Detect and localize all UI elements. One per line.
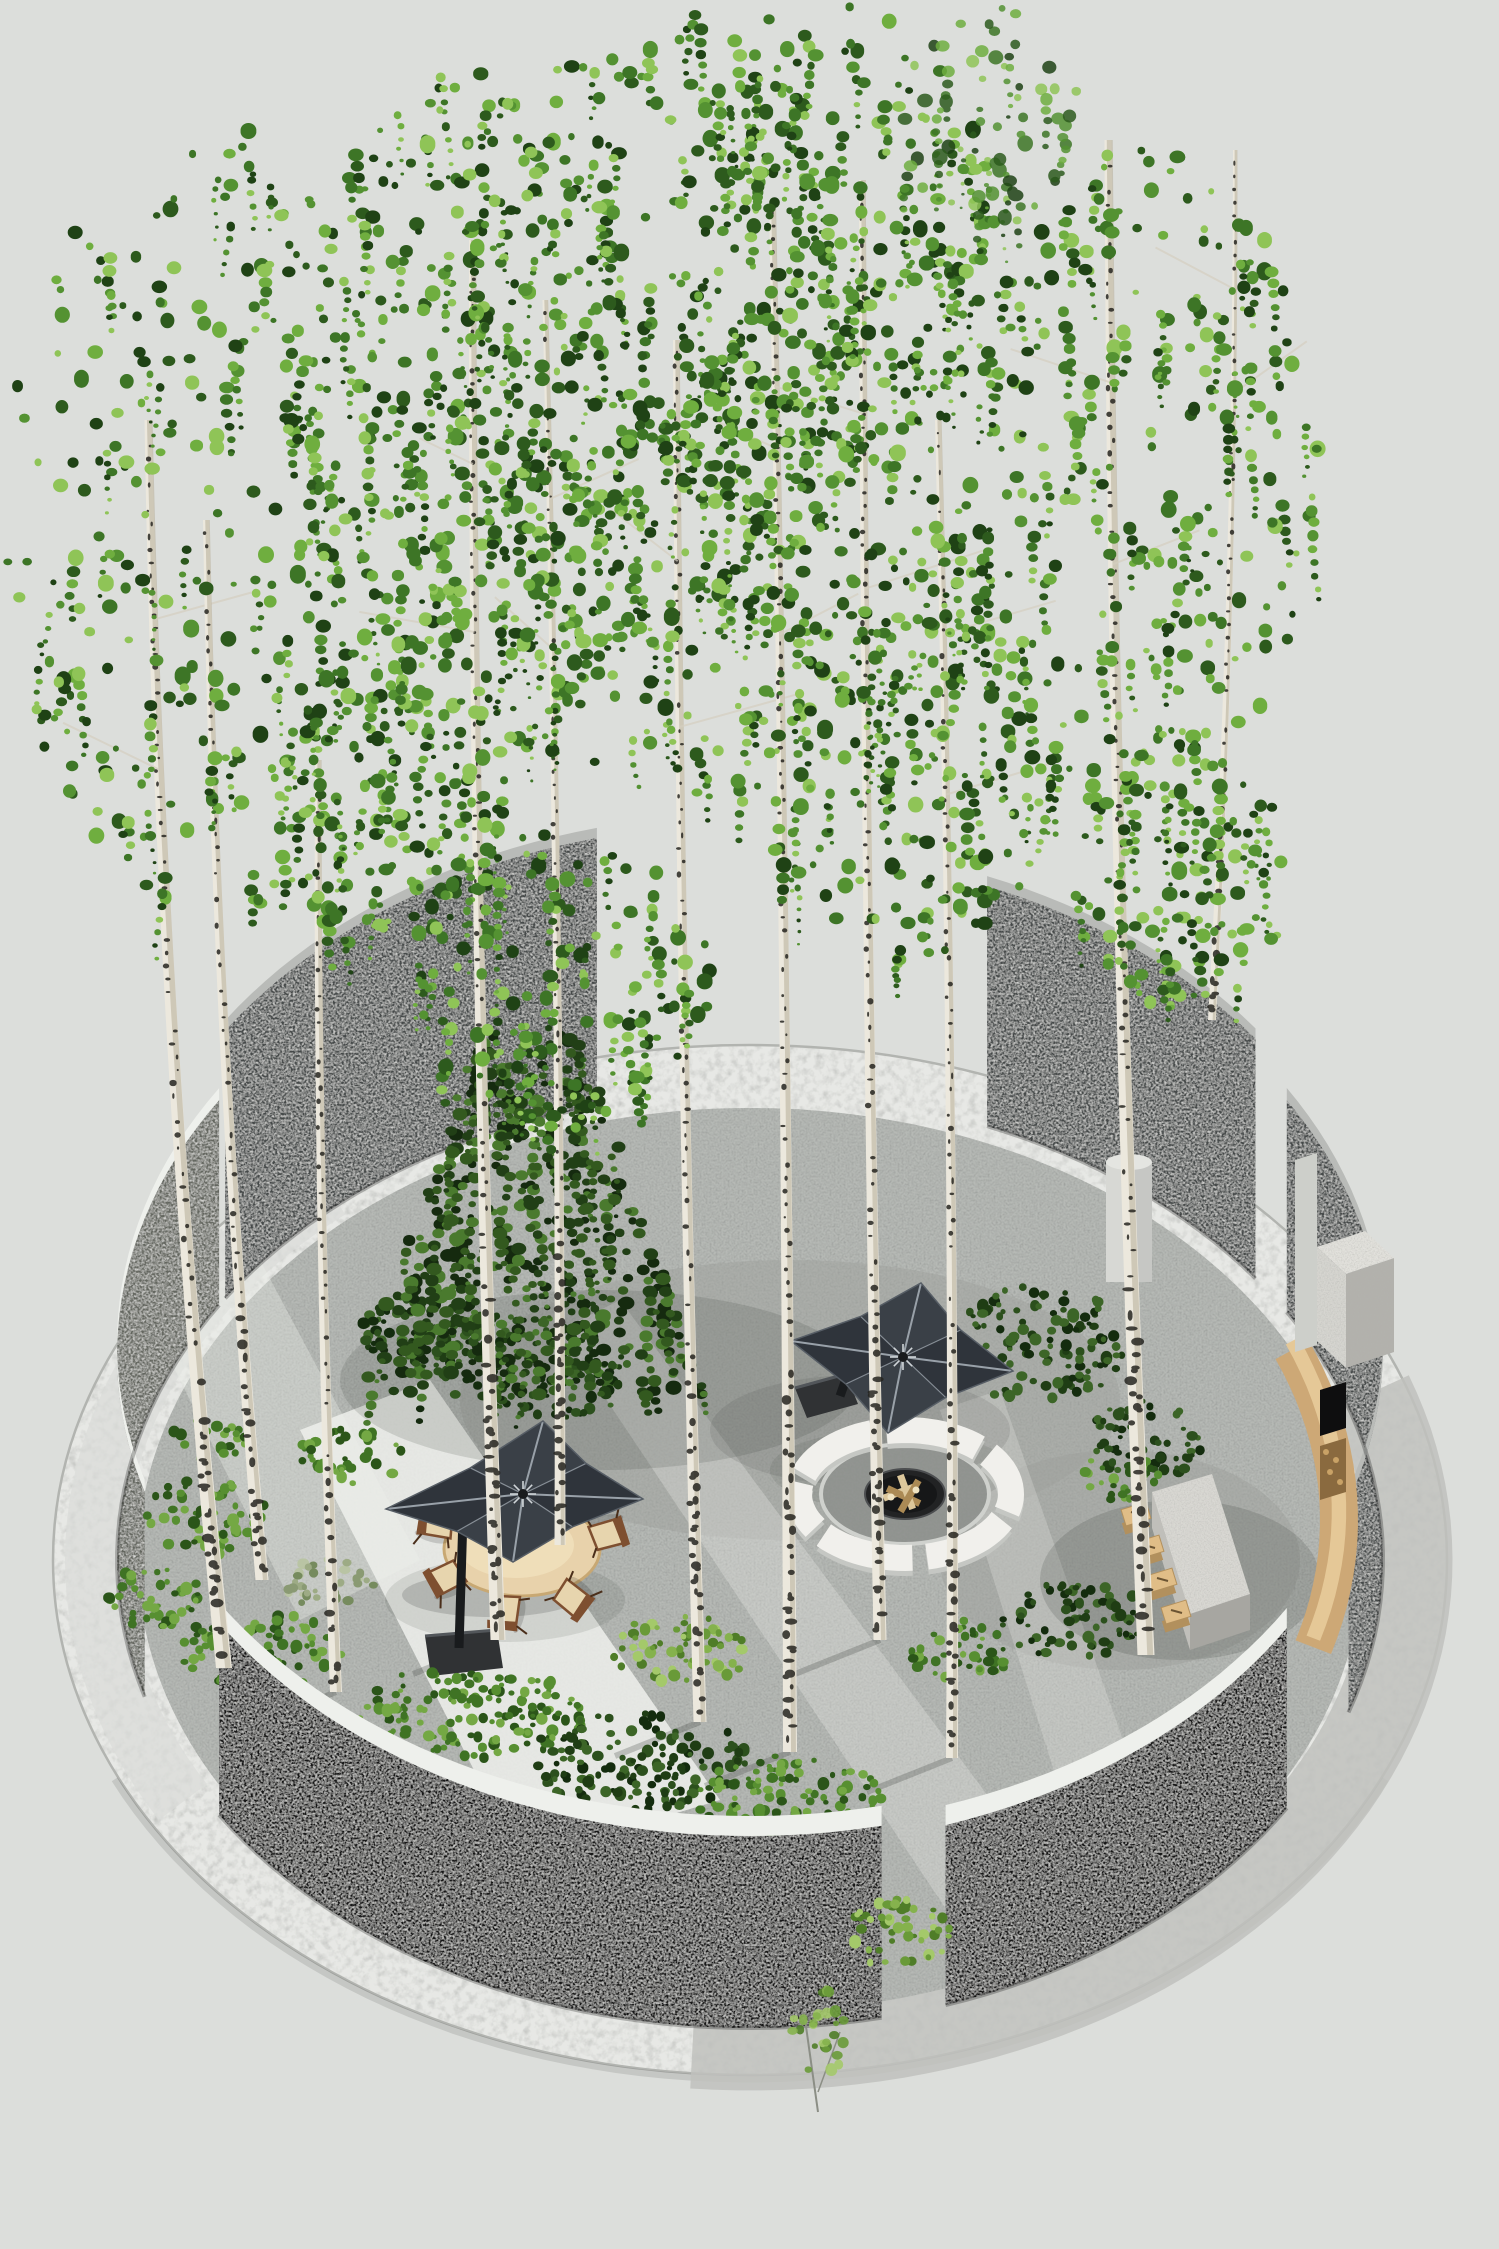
garden-visualization: Circular birch-grove garden — 3D landsca… [0,0,1499,2249]
render-canvas: Circular birch-grove garden — 3D landsca… [0,0,1499,2249]
fire-pit-lounge [799,1430,1011,1563]
